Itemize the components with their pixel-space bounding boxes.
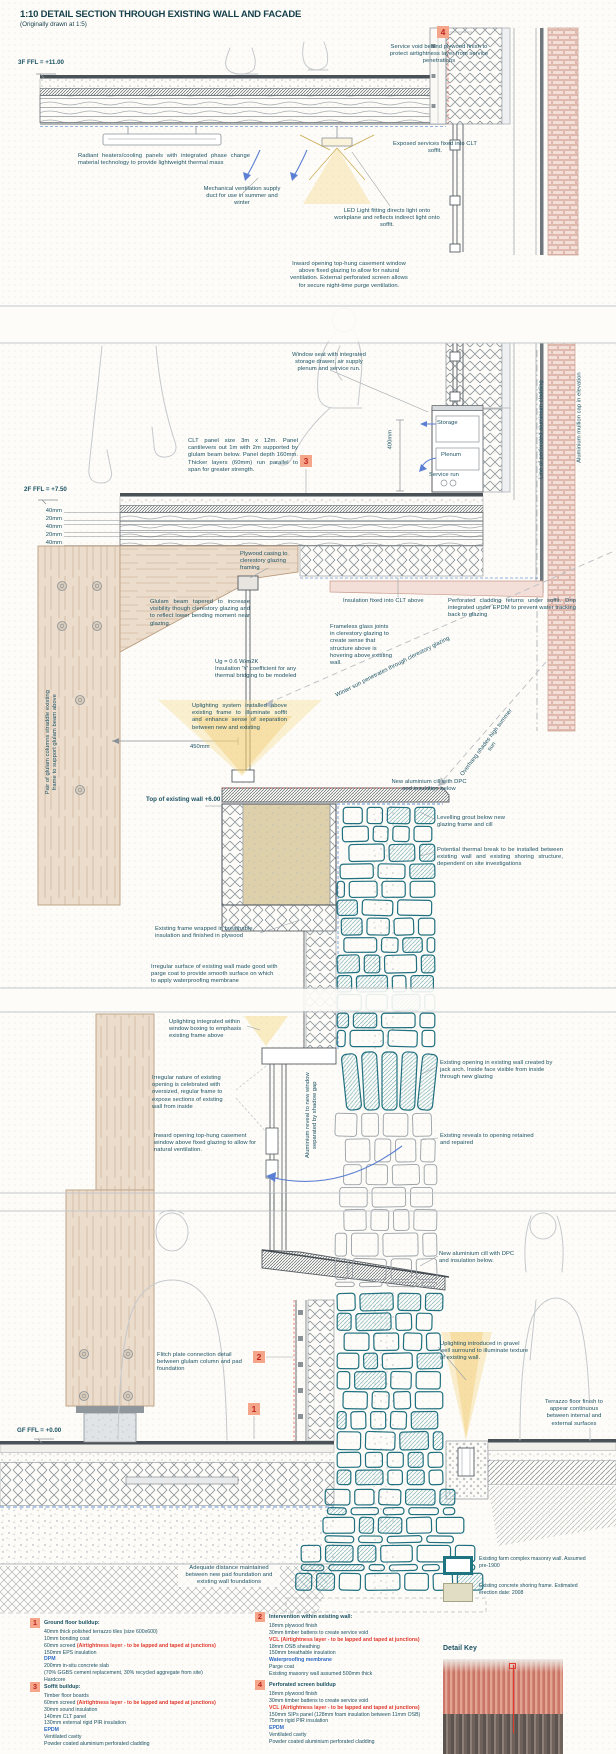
note-marker-4: 4 [255,1680,265,1690]
annotation-alu-reveal: Aluminium reveal to new window separated… [305,1061,319,1169]
buildup-note-1: 1Ground floor buildup:40mm thick polishe… [30,1618,246,1684]
annotation-exposed: Exposed services fixed into CLT soffit. [391,141,479,155]
note-4-line-3: VCL (Airtightness layer - to be lapped a… [269,1705,441,1712]
annotation-dim-f2: 20mm [38,516,62,523]
annotation-service-run: Service run [429,472,475,479]
annotation-insul-clt: Insulation fixed into CLT above [343,598,455,605]
note-2-line-7: Parge coat [269,1664,441,1671]
annotation-svc-void: Service void behind plywood finish to pr… [383,44,495,66]
legend: Existing farm complex masonry wall. Assu… [443,1556,595,1610]
note-4-line-7: Ventilated cavity [269,1732,441,1739]
drawing-sheet: 1:10 DETAIL SECTION THROUGH EXISTING WAL… [0,0,616,1754]
note-4-line-2: 30mm timber battens to create service vo… [269,1698,441,1705]
detail-marker-2: 2 [253,1351,265,1363]
buildup-note-4: 4Perforated screen buildup18mm plywood f… [255,1680,441,1746]
annotation-frameless: Frameless glass joints in clerestory gla… [330,624,394,667]
annotation-dim-f4: 20mm [38,532,62,539]
note-2-line-1: 18mm plywood finish [269,1623,441,1630]
level-label-lvl-gf: GF FFL = +0.00 [17,1427,61,1434]
buildup-note-3: 3Soffit buildup:Timber floor boards60mm … [30,1682,246,1748]
annotation-dim-400: 400mm [387,418,394,462]
note-2-line-8: Existing masonry wall assumed 500mm thic… [269,1671,441,1678]
annotation-irregular-nature: Irregular nature of existing opening is … [152,1075,234,1111]
note-1-line-7: (70% GGBS cement replacement, 30% recycl… [44,1670,246,1677]
detail-key-sky [443,1659,563,1672]
annotation-ug: Ug = 0.6 W/m2K Insulation 'Y' coefficien… [215,659,311,681]
note-1-line-3: 60mm screed (Airtightness layer - to be … [44,1643,246,1650]
detail-key-section-line [513,1665,514,1733]
note-4-line-5: 75mm rigid PIR insulation [269,1718,441,1725]
annotation-uplight-gravel: Uplighting introduced in gravel well sur… [440,1341,530,1363]
annotation-inward-top: Inward opening top-hung casement window … [288,261,410,290]
detail-key-photo [443,1659,563,1754]
annotation-clt-panel: CLT panel size 3m x 12m. Panel cantileve… [188,438,298,474]
buildup-note-2: 2Intervention within existing wall:18mm … [255,1612,441,1678]
annotation-reveals: Existing reveals to opening retained and… [440,1133,536,1147]
level-label-lvl-3f: 3F FFL = +11.00 [18,59,64,66]
note-3-line-5: 130mm external rigid PIR insulation [44,1720,246,1727]
note-marker-2: 2 [255,1612,265,1622]
note-4-line-6: EPDM [269,1725,441,1732]
annotation-levelling: Levelling grout below new glazing frame … [437,815,521,829]
note-title-2: Intervention within existing wall: [269,1612,352,1621]
note-title-4: Perforated screen buildup [269,1680,336,1689]
annotation-line-perf: Line of perforated aluminium cladding [538,370,545,490]
note-2-line-3: VCL (Airtightness layer - to be lapped a… [269,1637,441,1644]
note-1-line-5: DPM [44,1656,246,1663]
note-2-line-2: 30mm timber battens to create service vo… [269,1630,441,1637]
legend-label-shoring: Existing concrete shoring frame. Estimat… [479,1583,595,1597]
note-title-1: Ground floor buildup: [44,1618,100,1627]
annotation-glulam-taper: Glulam beam tapered to increase visibili… [150,599,250,628]
note-3-line-3: 30mm sound insulation [44,1707,246,1714]
detail-marker-1: 1 [248,1403,260,1415]
note-2-line-4: 18mm OSB sheathing [269,1644,441,1651]
note-3-line-7: Ventilated cavity [44,1734,246,1741]
annotation-terrazzo-cont: Terrazzo floor finish to appear continuo… [541,1399,607,1428]
annotation-mullion-cap: Aluminium mullion cap in elevation [576,368,583,468]
annotation-storage: Storage [437,420,477,427]
note-3-line-4: 140mm CLT panel [44,1714,246,1721]
annotation-inward-lower: Inward opening top-hung casement window … [154,1133,260,1155]
annotation-mech-vent: Mechanical ventilation supply duct for u… [198,186,286,208]
annotation-radiant: Radiant heaters/cooling panels with inte… [78,153,250,167]
legend-swatch-masonry [443,1556,473,1575]
annotation-irregular-surface: Irregular surface of existing wall made … [151,964,279,986]
annotation-adequate: Adequate distance maintained between new… [178,1565,280,1587]
note-2-line-5: 150mm breathable insulation [269,1650,441,1657]
detail-marker-4: 4 [437,26,449,38]
annotation-perf-returns: Perforated cladding returns under soffit… [448,598,576,620]
note-marker-1: 1 [30,1618,40,1628]
note-4-line-4: 150mm SIPs panel (128mm foam insulation … [269,1712,441,1719]
note-3-line-8: Powder coated aluminium perforated cladd… [44,1741,246,1748]
annotation-existing-opening: Existing opening in existing wall create… [440,1060,562,1082]
annotation-led: LED Light fitting directs light onto wor… [333,208,441,230]
note-4-line-1: 18mm plywood finish [269,1691,441,1698]
annotation-dim-f5: 40mm [38,540,62,547]
annotation-dim-f1: 40mm [38,508,62,515]
annotation-uplight-sys: Uplighting system installed above existi… [192,703,287,732]
legend-label-masonry: Existing farm complex masonry wall. Assu… [479,1556,595,1570]
note-1-line-1: 40mm thick polished terrazzo tiles (size… [44,1629,246,1636]
legend-item-shoring: Existing concrete shoring frame. Estimat… [443,1583,595,1602]
annotation-plywood-casing: Plywood casing to clerestory glazing fra… [240,551,304,573]
note-3-line-1: Timber floor boards [44,1693,246,1700]
annotation-flitch: Flitch plate connection detail between g… [157,1352,249,1374]
legend-swatch-shoring [443,1583,473,1602]
detail-key-title: Detail Key [443,1645,477,1652]
annotation-glulam-pair: Pair of glulam columns straddle existing… [45,684,59,800]
note-1-line-6: 200mm in-situ concrete slab [44,1663,246,1670]
legend-item-masonry: Existing farm complex masonry wall. Assu… [443,1556,595,1575]
annotation-window-seat: Window seat with integrated storage draw… [288,352,370,374]
detail-key-section-marker [509,1663,516,1669]
detail-marker-3: 3 [300,455,312,467]
annotation-plenum: Plenum [441,452,481,459]
annotation-dim-f3: 40mm [38,524,62,531]
note-4-line-8: Powder coated aluminium perforated cladd… [269,1739,441,1746]
note-1-line-2: 10mm bonding coat [44,1636,246,1643]
detail-key-crowd [443,1714,563,1754]
annotation-dim-450: 450mm [190,744,230,751]
note-2-line-6: Waterproofing membrane [269,1657,441,1664]
level-label-lvl-2f: 2F FFL = +7.50 [24,486,67,493]
note-1-line-4: 150mm EPS insulation [44,1650,246,1657]
note-3-line-6: EPDM [44,1727,246,1734]
note-title-3: Soffit buildup: [44,1682,81,1691]
annotation-uplight-boxing: Uplighting integrated within window boxi… [169,1019,247,1041]
level-label-lvl-wall: Top of existing wall +6.00 [146,796,220,803]
note-marker-3: 3 [30,1682,40,1692]
note-3-line-2: 60mm screed (Airtightness layer - to be … [44,1700,246,1707]
annotation-cill1: New aluminium cill with DPC and insulati… [391,779,467,793]
annotation-frame-wrapped: Existing frame wrapped in breathable ins… [155,926,259,940]
annotation-cill2: New aluminium cill with DPC and insulati… [439,1251,519,1265]
annotation-thermal-break: Potential thermal break to be installed … [437,847,563,869]
